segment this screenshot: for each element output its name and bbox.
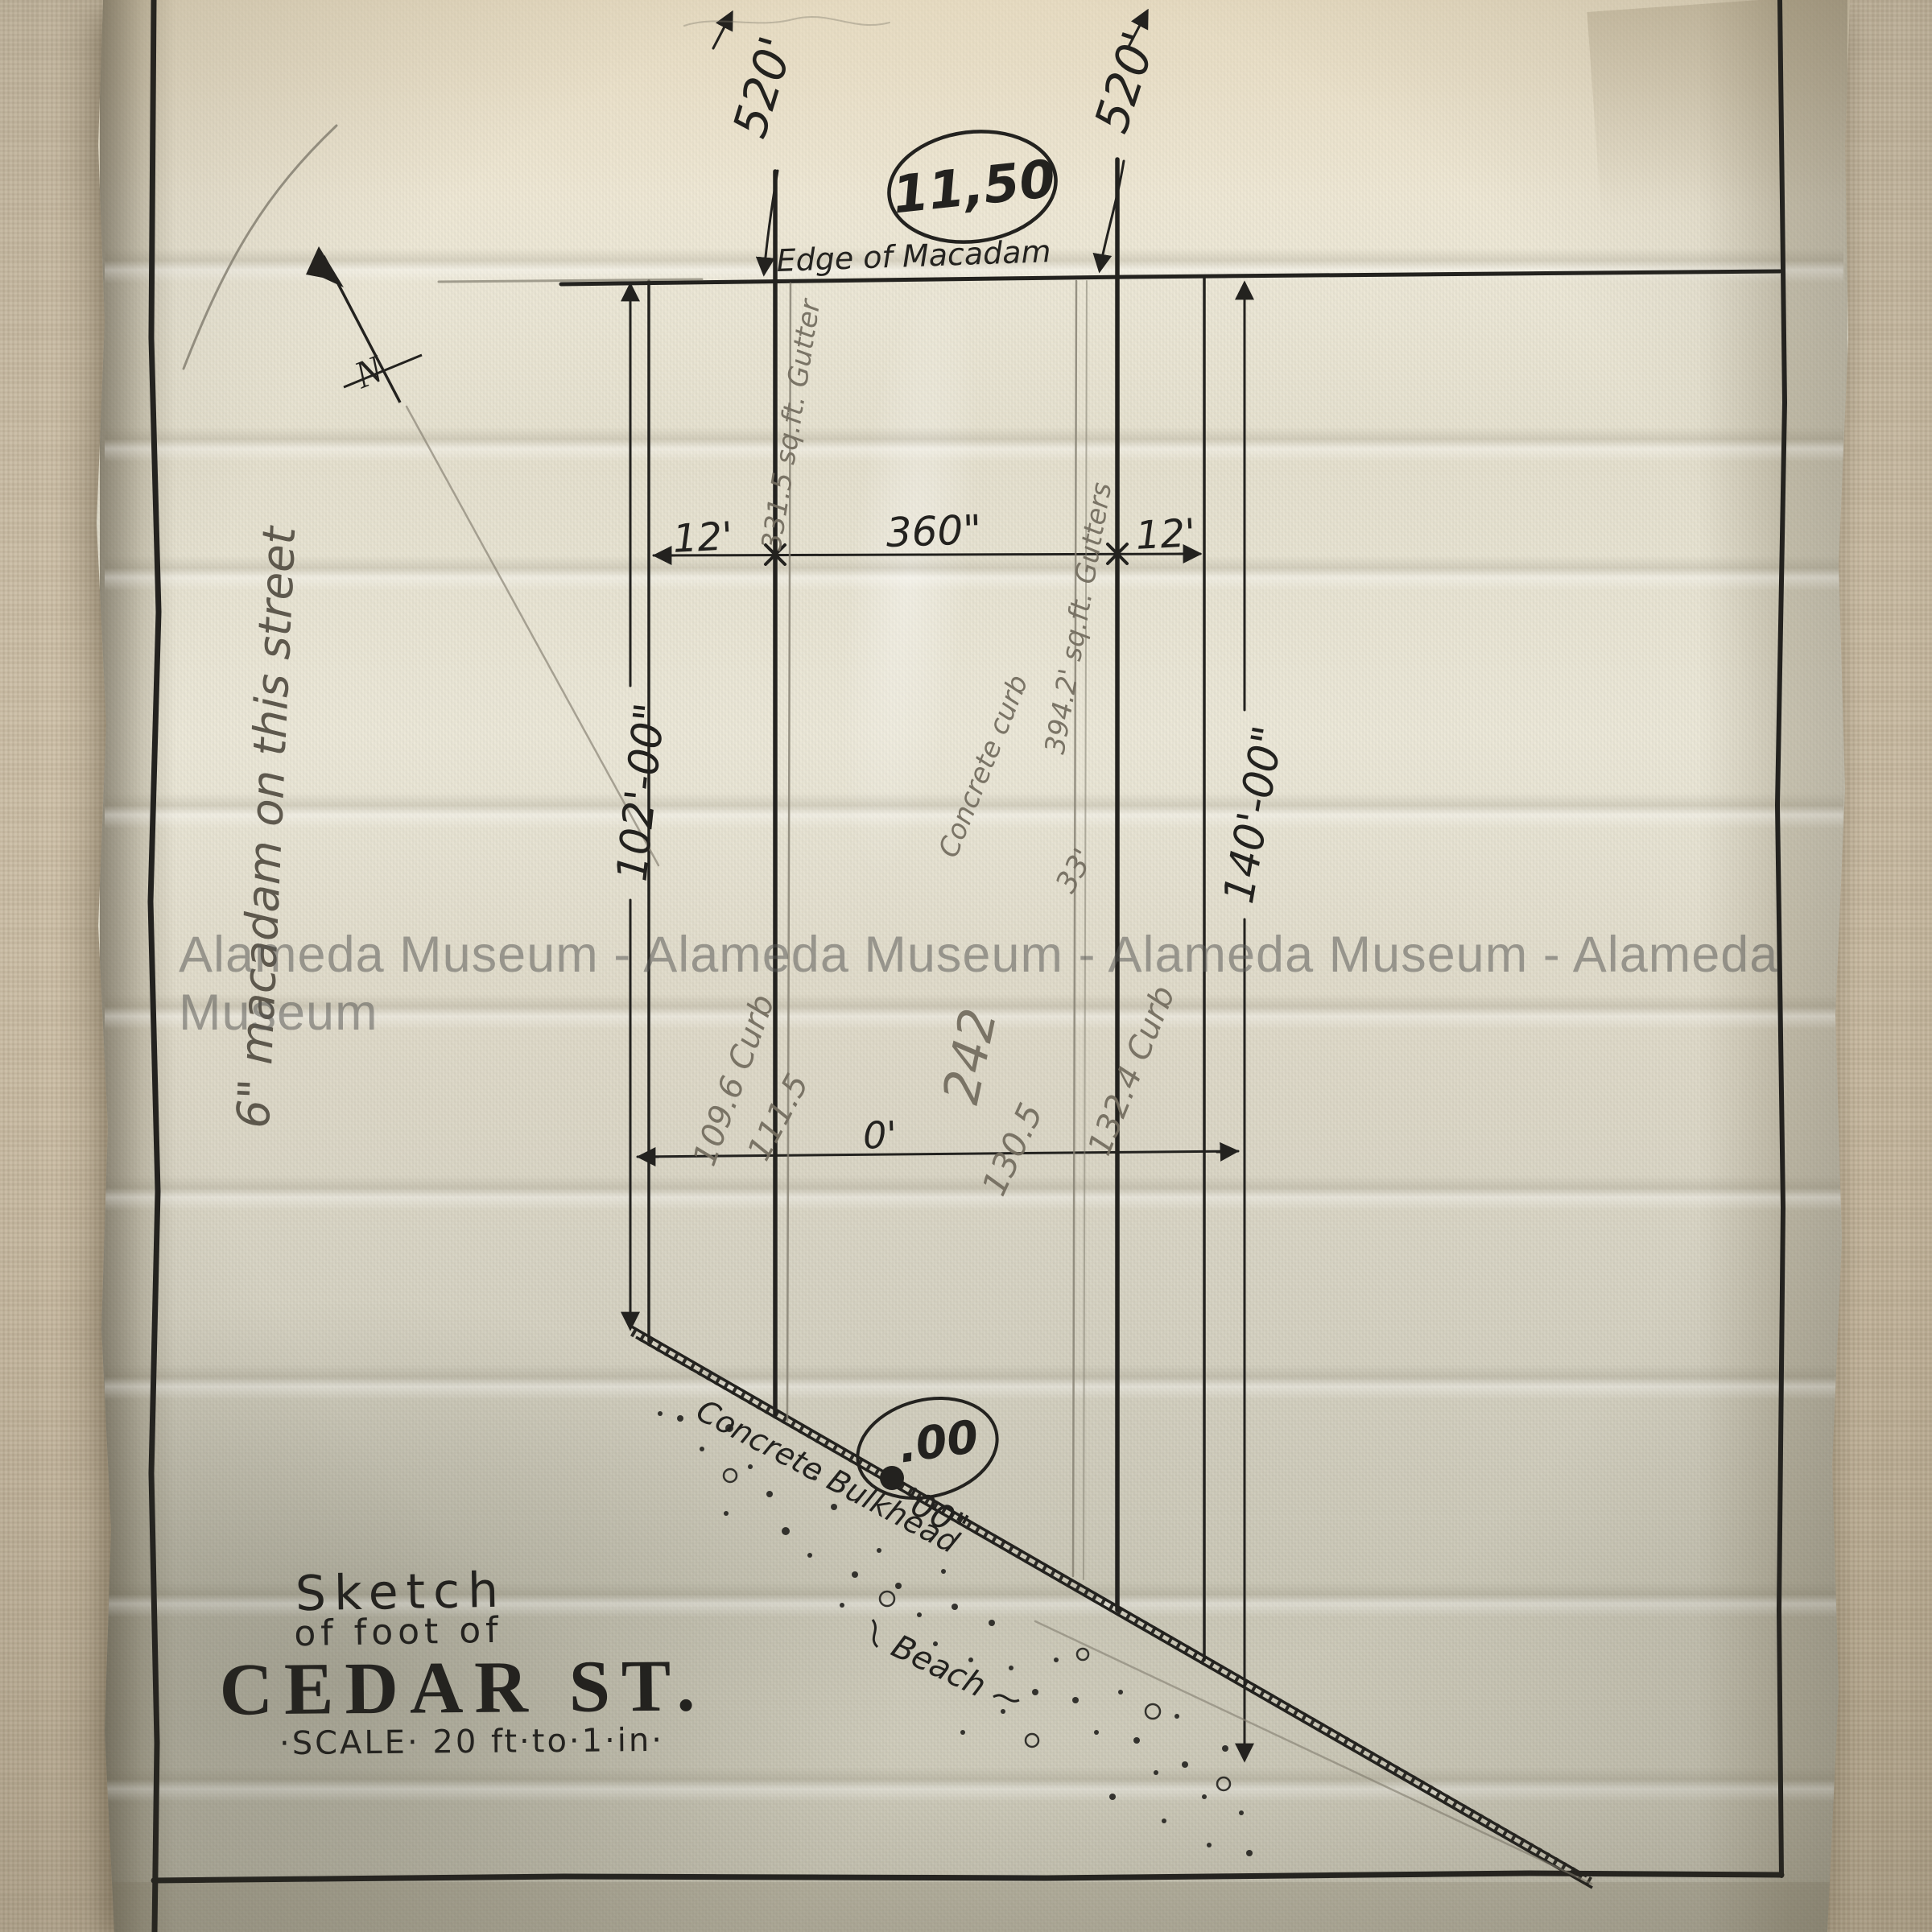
bulkhead-oval-value: .00 <box>896 1414 981 1470</box>
baseline-dim: 0' <box>862 1116 898 1154</box>
scale-note: ·SCALE· 20 ft·to·1·in· <box>279 1724 664 1760</box>
title-street-name: CEDAR ST. <box>219 1648 707 1726</box>
east-gutter-pencil-line <box>1073 281 1076 1576</box>
fabric-surface: Edge of Macadam 11,50 520' 520' 102'-00"… <box>0 0 1932 1932</box>
beach-toe-line <box>1035 1621 1591 1884</box>
plan-linework <box>0 0 1932 1932</box>
linen-drawing-sheet: Edge of Macadam 11,50 520' 520' 102'-00"… <box>0 0 1932 1932</box>
west-gutter-dim: 12' <box>672 517 734 559</box>
bulkhead <box>630 1326 1592 1888</box>
east-520-leader <box>1100 161 1124 270</box>
faint-scribble <box>684 17 890 26</box>
edge-of-macadam-line <box>561 271 1780 284</box>
north-arrow-head <box>306 246 344 287</box>
roadway-dim: 360" <box>885 510 982 553</box>
east-gutter-dim: 12' <box>1135 514 1197 555</box>
corner-pencil-curve <box>184 126 336 369</box>
photo-of-survey-sketch: { "artifact": { "watermark": "Alameda Mu… <box>0 0 1932 1932</box>
edge-of-macadam-label: Edge of Macadam <box>776 236 1051 276</box>
